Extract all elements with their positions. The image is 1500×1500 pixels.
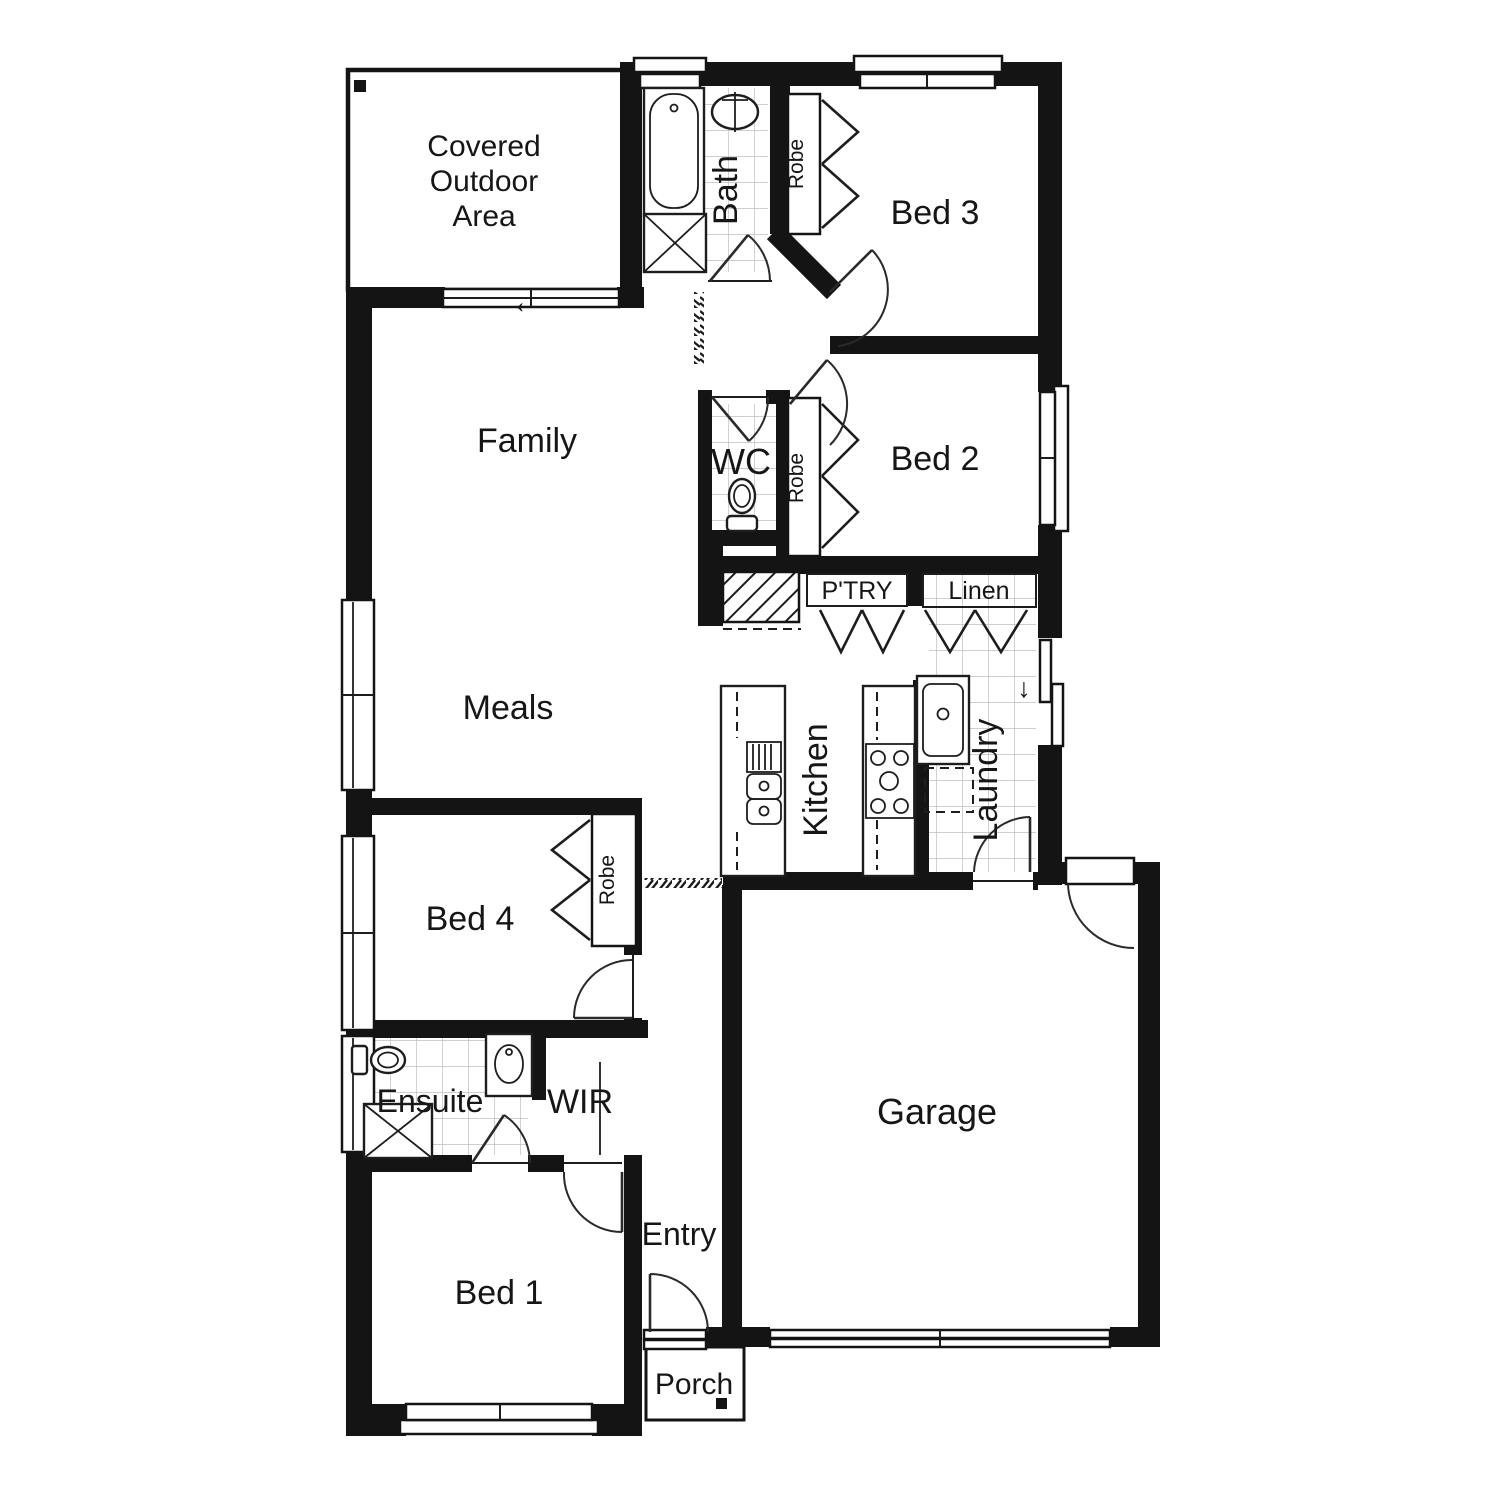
label-bed1: Bed 1 [455, 1274, 544, 1312]
bed3-window [854, 56, 1002, 88]
bed4-door [574, 960, 632, 1018]
ensuite-vanity [486, 1034, 532, 1096]
laundry-step-arrow-icon: ↓ [1017, 673, 1031, 703]
label-robe-bed3: Robe [785, 139, 808, 189]
bath-shower [644, 214, 706, 272]
label-ensuite: Ensuite [377, 1083, 484, 1119]
label-covered-outdoor-line3: Area [452, 200, 516, 233]
label-bed2: Bed 2 [891, 440, 980, 478]
plan-marker [354, 80, 366, 92]
wc-toilet [727, 479, 757, 531]
label-meals: Meals [463, 689, 554, 727]
bathtub [644, 88, 704, 216]
fridge-space [723, 572, 801, 629]
laundry-trough [917, 676, 969, 764]
bed4-robe [552, 814, 636, 946]
label-bath: Bath [707, 155, 745, 225]
garage-side-door [1066, 858, 1134, 948]
label-porch: Porch [655, 1368, 733, 1401]
patio-direction-arrow-icon: ← [510, 283, 544, 321]
label-entry: Entry [642, 1216, 717, 1252]
label-linen: Linen [948, 577, 1009, 605]
label-wir: WIR [547, 1083, 613, 1121]
label-wc: WC [711, 441, 771, 482]
label-robe-bed4: Robe [596, 855, 619, 905]
garage-door [770, 1330, 1110, 1347]
bed2-window [1040, 386, 1068, 531]
label-laundry: Laundry [967, 719, 1005, 842]
label-covered-outdoor-line1: Covered [427, 130, 540, 163]
ensuite-toilet [352, 1046, 405, 1074]
bath-window [634, 58, 706, 88]
front-door-threshold [644, 1330, 706, 1349]
front-door [650, 1274, 708, 1332]
label-robe-bed2: Robe [785, 453, 808, 503]
label-kitchen: Kitchen [797, 723, 835, 836]
bed3-door [830, 250, 888, 346]
laundry-sliding-door [1040, 640, 1063, 746]
label-bed3: Bed 3 [891, 194, 980, 232]
label-family: Family [477, 422, 577, 460]
bed1-window [400, 1404, 598, 1434]
label-bed4: Bed 4 [426, 900, 515, 938]
floorplan-canvas: ← ↓ Covered Outdoor Area Bath Robe Bed 3… [0, 0, 1500, 1500]
bed4-window [342, 836, 374, 1030]
label-garage: Garage [877, 1091, 997, 1132]
kitchen-back-bench [863, 686, 915, 876]
meals-window [342, 600, 374, 790]
label-covered-outdoor-line2: Outdoor [430, 165, 538, 198]
label-pantry: P'TRY [822, 577, 893, 605]
floorplan-drawing: ← ↓ Covered Outdoor Area Bath Robe Bed 3… [0, 0, 1500, 1500]
kitchen-island-bench [721, 686, 785, 876]
bed1-door [564, 1172, 622, 1232]
